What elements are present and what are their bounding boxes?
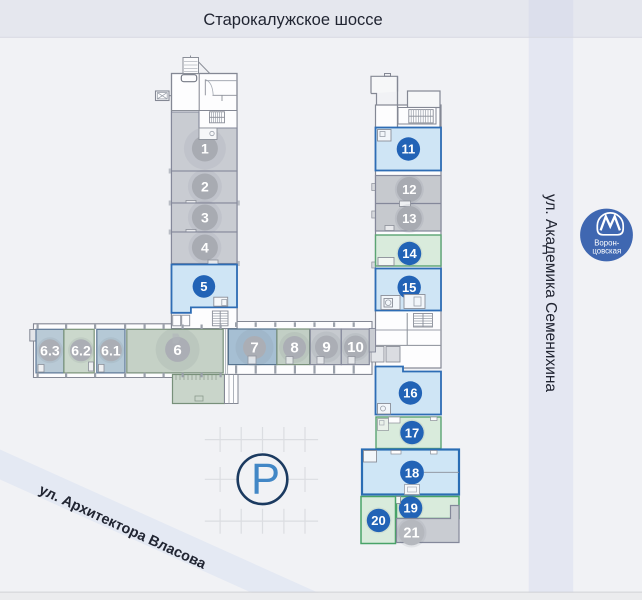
svg-text:6: 6	[173, 342, 181, 359]
svg-text:19: 19	[403, 501, 417, 516]
svg-text:P: P	[251, 456, 280, 504]
svg-text:6.1: 6.1	[101, 342, 121, 358]
svg-text:17: 17	[405, 425, 419, 440]
svg-text:10: 10	[347, 339, 364, 356]
svg-text:14: 14	[402, 246, 417, 261]
svg-text:цовская: цовская	[592, 247, 621, 256]
svg-text:3: 3	[201, 210, 209, 226]
svg-text:5: 5	[200, 279, 207, 294]
svg-text:6.3: 6.3	[40, 342, 60, 358]
svg-text:Старокалужское шоссе: Старокалужское шоссе	[203, 11, 382, 29]
svg-text:7: 7	[250, 340, 258, 357]
svg-text:4: 4	[201, 240, 209, 256]
svg-text:13: 13	[402, 211, 416, 226]
svg-text:9: 9	[322, 339, 330, 356]
svg-text:16: 16	[403, 386, 417, 401]
svg-text:1: 1	[201, 141, 209, 157]
svg-text:12: 12	[402, 182, 416, 197]
svg-text:15: 15	[402, 280, 416, 295]
svg-text:18: 18	[405, 465, 419, 480]
svg-text:11: 11	[402, 142, 416, 157]
svg-text:6.2: 6.2	[71, 342, 91, 358]
svg-text:8: 8	[290, 340, 298, 357]
svg-text:20: 20	[371, 513, 385, 528]
svg-text:21: 21	[403, 526, 419, 542]
svg-text:2: 2	[201, 179, 209, 195]
svg-text:ул. Академика Семенихина: ул. Академика Семенихина	[542, 194, 559, 392]
